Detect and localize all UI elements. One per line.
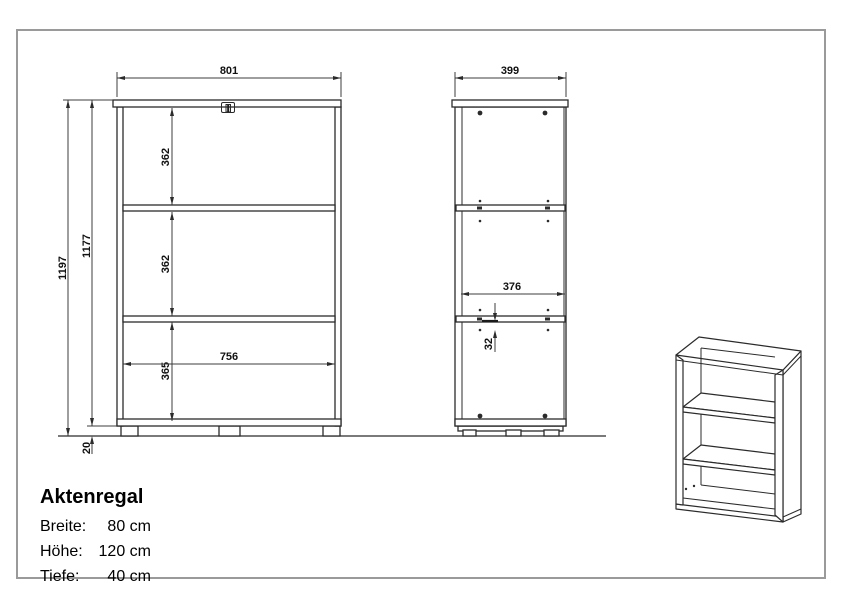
- peg-hole: [547, 220, 550, 223]
- spec-value: 40 cm: [97, 564, 151, 589]
- dim-depth-399: 399: [455, 65, 566, 97]
- spec-label: Breite:: [40, 514, 97, 539]
- front-top-board: [113, 100, 341, 107]
- front-foot-center: [219, 426, 240, 436]
- front-bottom-board: [117, 419, 341, 426]
- dim-compartment-bottom-365: 365: [160, 322, 174, 421]
- arrowhead: [66, 428, 70, 436]
- screw-icon: [543, 111, 548, 116]
- front-foot-right: [323, 426, 340, 436]
- shelf-pin: [477, 318, 482, 321]
- arrowhead: [90, 418, 94, 426]
- spec-value: 120 cm: [97, 539, 151, 564]
- dim-inner-width-756: 756: [123, 351, 335, 366]
- arrowhead: [333, 76, 341, 80]
- dim-label: 801: [220, 65, 238, 77]
- dim-body-height-1177: 1177: [81, 100, 117, 426]
- dim-label: 1177: [81, 234, 93, 258]
- shelf-pin: [545, 207, 550, 210]
- screw-icon: [478, 414, 483, 419]
- spec-row-height: Höhe: 120 cm: [40, 539, 151, 564]
- dim-compartment-top-362: 362: [160, 108, 174, 205]
- dim-label: 1197: [57, 256, 69, 280]
- dim-label: 756: [220, 351, 238, 363]
- front-shelf-1: [123, 205, 335, 211]
- iso-top-face: [676, 337, 801, 370]
- peg-hole: [479, 200, 482, 203]
- arrowhead: [66, 100, 70, 108]
- arrowhead: [117, 76, 125, 80]
- dim-width-801: 801: [117, 65, 341, 97]
- peg-hole: [479, 220, 482, 223]
- screw-icon: [478, 111, 483, 116]
- arrowhead: [123, 362, 131, 366]
- peg-hole: [547, 309, 550, 312]
- iso-left-edge-band: [676, 355, 683, 505]
- front-foot-left: [121, 426, 138, 436]
- screw-icon: [543, 414, 548, 419]
- arrowhead: [170, 212, 174, 220]
- spec-label: Tiefe:: [40, 564, 97, 589]
- peg-hole: [685, 488, 687, 490]
- product-title: Aktenregal: [40, 486, 151, 509]
- arrowhead: [327, 362, 335, 366]
- peg-hole: [693, 485, 695, 487]
- arrowhead: [558, 76, 566, 80]
- dim-total-height-1197: 1197: [57, 100, 113, 436]
- spec-label: Höhe:: [40, 539, 97, 564]
- arrowhead: [455, 76, 463, 80]
- side-view: 399 376 32: [452, 65, 568, 436]
- iso-bottom-edge-band: [676, 504, 783, 522]
- iso-right-edge-band: [775, 370, 783, 522]
- dim-label: 376: [503, 281, 521, 293]
- dim-label: 399: [501, 65, 519, 77]
- iso-right-face: [783, 351, 801, 522]
- dim-base-height-20: 20: [81, 436, 94, 454]
- side-foot-back: [544, 430, 559, 436]
- side-body: [455, 107, 566, 426]
- front-view: 801 1197 1177 20: [57, 65, 341, 454]
- arrowhead: [90, 100, 94, 108]
- side-foot-front: [463, 430, 476, 436]
- product-info-block: Aktenregal Breite: 80 cm Höhe: 120 cm Ti…: [40, 486, 151, 589]
- arrowhead: [170, 308, 174, 316]
- technical-drawing-page: 801 1197 1177 20: [0, 0, 841, 595]
- arrowhead: [170, 322, 174, 330]
- dim-label: 365: [160, 362, 172, 380]
- peg-hole: [547, 329, 550, 332]
- shelf-pin: [477, 207, 482, 210]
- dim-label: 362: [160, 255, 172, 273]
- front-right-panel: [335, 107, 341, 426]
- arrowhead: [170, 197, 174, 205]
- side-top-board: [452, 100, 568, 107]
- front-left-panel: [117, 107, 123, 426]
- arrowhead: [170, 108, 174, 116]
- peg-hole: [479, 309, 482, 312]
- dim-label: 32: [483, 338, 495, 350]
- dim-compartment-middle-362: 362: [160, 212, 174, 316]
- spec-row-width: Breite: 80 cm: [40, 514, 151, 539]
- side-foot-center: [506, 430, 521, 436]
- iso-back-bottom-edge: [701, 485, 775, 494]
- spec-value: 80 cm: [97, 514, 151, 539]
- peg-hole: [479, 329, 482, 332]
- front-shelf-2: [123, 316, 335, 322]
- shelf-pin: [545, 318, 550, 321]
- peg-hole: [547, 200, 550, 203]
- spec-row-depth: Tiefe: 40 cm: [40, 564, 151, 589]
- isometric-view: [676, 337, 801, 522]
- side-bottom-board: [455, 419, 566, 426]
- dim-label: 362: [160, 148, 172, 166]
- dim-label: 20: [81, 442, 93, 454]
